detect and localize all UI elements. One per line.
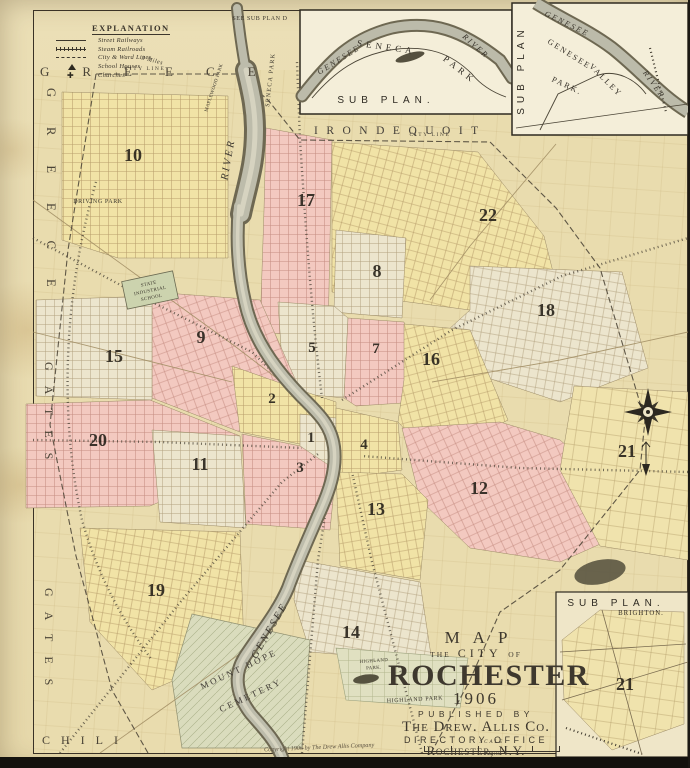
ward-number-4: 4 (360, 437, 368, 453)
ward-number-19: 19 (147, 580, 165, 600)
ward-number-3: 3 (296, 460, 304, 476)
school-house-triangle-icon (68, 64, 76, 70)
brighton-ward-21-number: 21 (616, 674, 634, 694)
legend-label: Steam Railroads (98, 46, 145, 53)
legend-label: School Houses (98, 63, 140, 70)
seneca-subplan-title: SUB PLAN. (337, 95, 434, 106)
ward-number-14: 14 (342, 622, 360, 642)
title-publisher: The Drew. Allis Co. (388, 719, 564, 735)
antique-map-sheet: STATE INDUSTRIAL SCHOOL GENESEE RIVER SE… (0, 0, 690, 768)
legend-label: Churches (98, 72, 125, 79)
steam-railroad-line-symbol (56, 47, 86, 51)
street-railway-line-symbol (56, 40, 86, 41)
explanation-legend: EXPLANATION Street Railways Steam Railro… (56, 18, 196, 80)
ward-number-2: 2 (268, 391, 276, 407)
ward-number-9: 9 (197, 327, 206, 347)
ward-number-15: 15 (105, 346, 123, 366)
explanation-title: EXPLANATION (92, 23, 170, 35)
title-city: CITY (458, 646, 502, 660)
gates-lower-label: GATES (42, 588, 56, 700)
ward-number-12: 12 (470, 478, 488, 498)
chili-bottom-label: CHILI (42, 733, 129, 747)
ward-number-21: 21 (618, 441, 636, 461)
legend-row-street-railways: Street Railways (56, 36, 196, 45)
legend-row-ward-lines: City & Ward Lines (56, 54, 196, 63)
greece-left-label: GREECE (44, 88, 58, 317)
ward-number-17: 17 (297, 190, 315, 210)
see-sub-plan-note: SEE SUB PLAN D (232, 16, 287, 22)
sub-plan-seneca: GENESEE RIVER SENECA PARK SUB PLAN. (300, 10, 512, 114)
ward-number-20: 20 (89, 430, 107, 450)
legend-row-churches: ✚ Churches (56, 71, 196, 80)
ward-number-5: 5 (308, 340, 316, 356)
city-ward-line-symbol (56, 57, 86, 58)
legend-label: City & Ward Lines (98, 54, 152, 61)
scale-bar: SCALE 1 Mile (424, 740, 560, 758)
ward-region-10 (62, 92, 228, 258)
map-title-block: MAP THE CITY OF ROCHESTER 1906 PUBLISHED… (388, 629, 564, 758)
rochester-map-canvas: STATE INDUSTRIAL SCHOOL GENESEE RIVER SE… (0, 0, 690, 768)
ward-number-16: 16 (422, 349, 440, 369)
title-of: OF (508, 650, 522, 659)
legend-row-school-houses: School Houses (56, 62, 196, 71)
legend-row-steam-railroads: Steam Railroads (56, 45, 196, 54)
ward-region-13 (336, 472, 428, 580)
sub-plan-genesee-valley: SUB PLAN GENESEE RIVER GENESEE VALLEY PA… (512, 3, 688, 135)
church-cross-icon: ✚ (67, 72, 74, 80)
title-the: THE (430, 650, 451, 659)
ward-number-8: 8 (373, 261, 382, 281)
ward-region-11 (152, 430, 246, 528)
ward-number-10: 10 (124, 145, 142, 165)
irondequoit-label: IRONDEQUOIT (314, 125, 487, 137)
city-line-label-ne: CITY LINE (410, 132, 451, 138)
title-published-by: PUBLISHED BY (388, 709, 564, 719)
gates-upper-label: GATES (42, 362, 56, 474)
brighton-subplan-title: SUB PLAN. (567, 598, 664, 609)
photo-edge-bottom (0, 757, 690, 768)
ward-region-8 (334, 230, 406, 318)
title-city-name: ROCHESTER (388, 661, 564, 690)
ward-number-1: 1 (307, 430, 315, 446)
title-map-word: MAP (388, 629, 564, 646)
legend-label: Street Railways (98, 37, 143, 44)
ward-number-13: 13 (367, 499, 385, 519)
ward-number-11: 11 (191, 454, 208, 474)
scale-label: SCALE (424, 740, 560, 745)
driving-park-label: DRIVING PARK (73, 199, 123, 205)
valley-subplan-title: SUB PLAN (516, 25, 527, 114)
ward-number-7: 7 (372, 341, 380, 357)
title-year: 1906 (388, 690, 564, 707)
brighton-subplan-subtitle: BRIGHTON. (618, 610, 664, 617)
ward-number-22: 22 (479, 205, 497, 225)
ward-number-18: 18 (537, 300, 555, 320)
